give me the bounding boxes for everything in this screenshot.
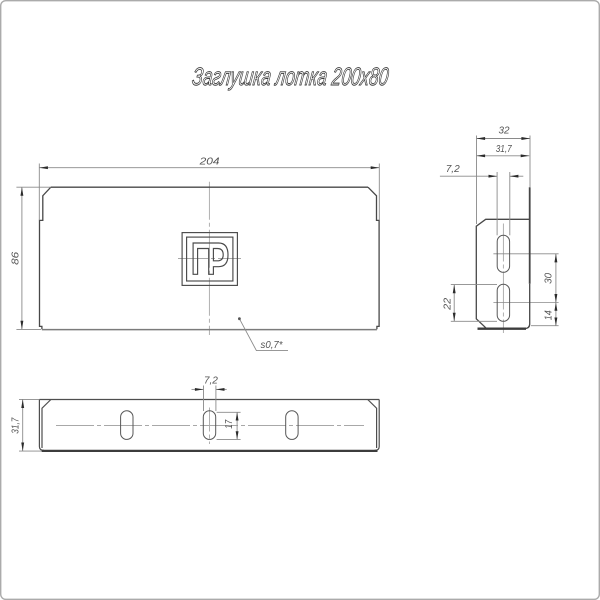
svg-text:30: 30 xyxy=(542,273,554,284)
svg-text:31,7: 31,7 xyxy=(10,417,22,434)
svg-text:17: 17 xyxy=(223,419,235,429)
svg-text:14: 14 xyxy=(542,310,554,320)
svg-text:31,7: 31,7 xyxy=(496,143,513,155)
svg-text:204: 204 xyxy=(198,156,219,168)
svg-text:22: 22 xyxy=(441,298,453,311)
svg-text:7,2: 7,2 xyxy=(204,374,218,386)
svg-text:7,2: 7,2 xyxy=(446,163,460,175)
svg-text:86: 86 xyxy=(10,252,22,265)
svg-text:s0,7*: s0,7* xyxy=(261,339,284,351)
svg-text:Заглушка лотка 200х80: Заглушка лотка 200х80 xyxy=(191,63,390,91)
svg-text:32: 32 xyxy=(499,125,510,137)
